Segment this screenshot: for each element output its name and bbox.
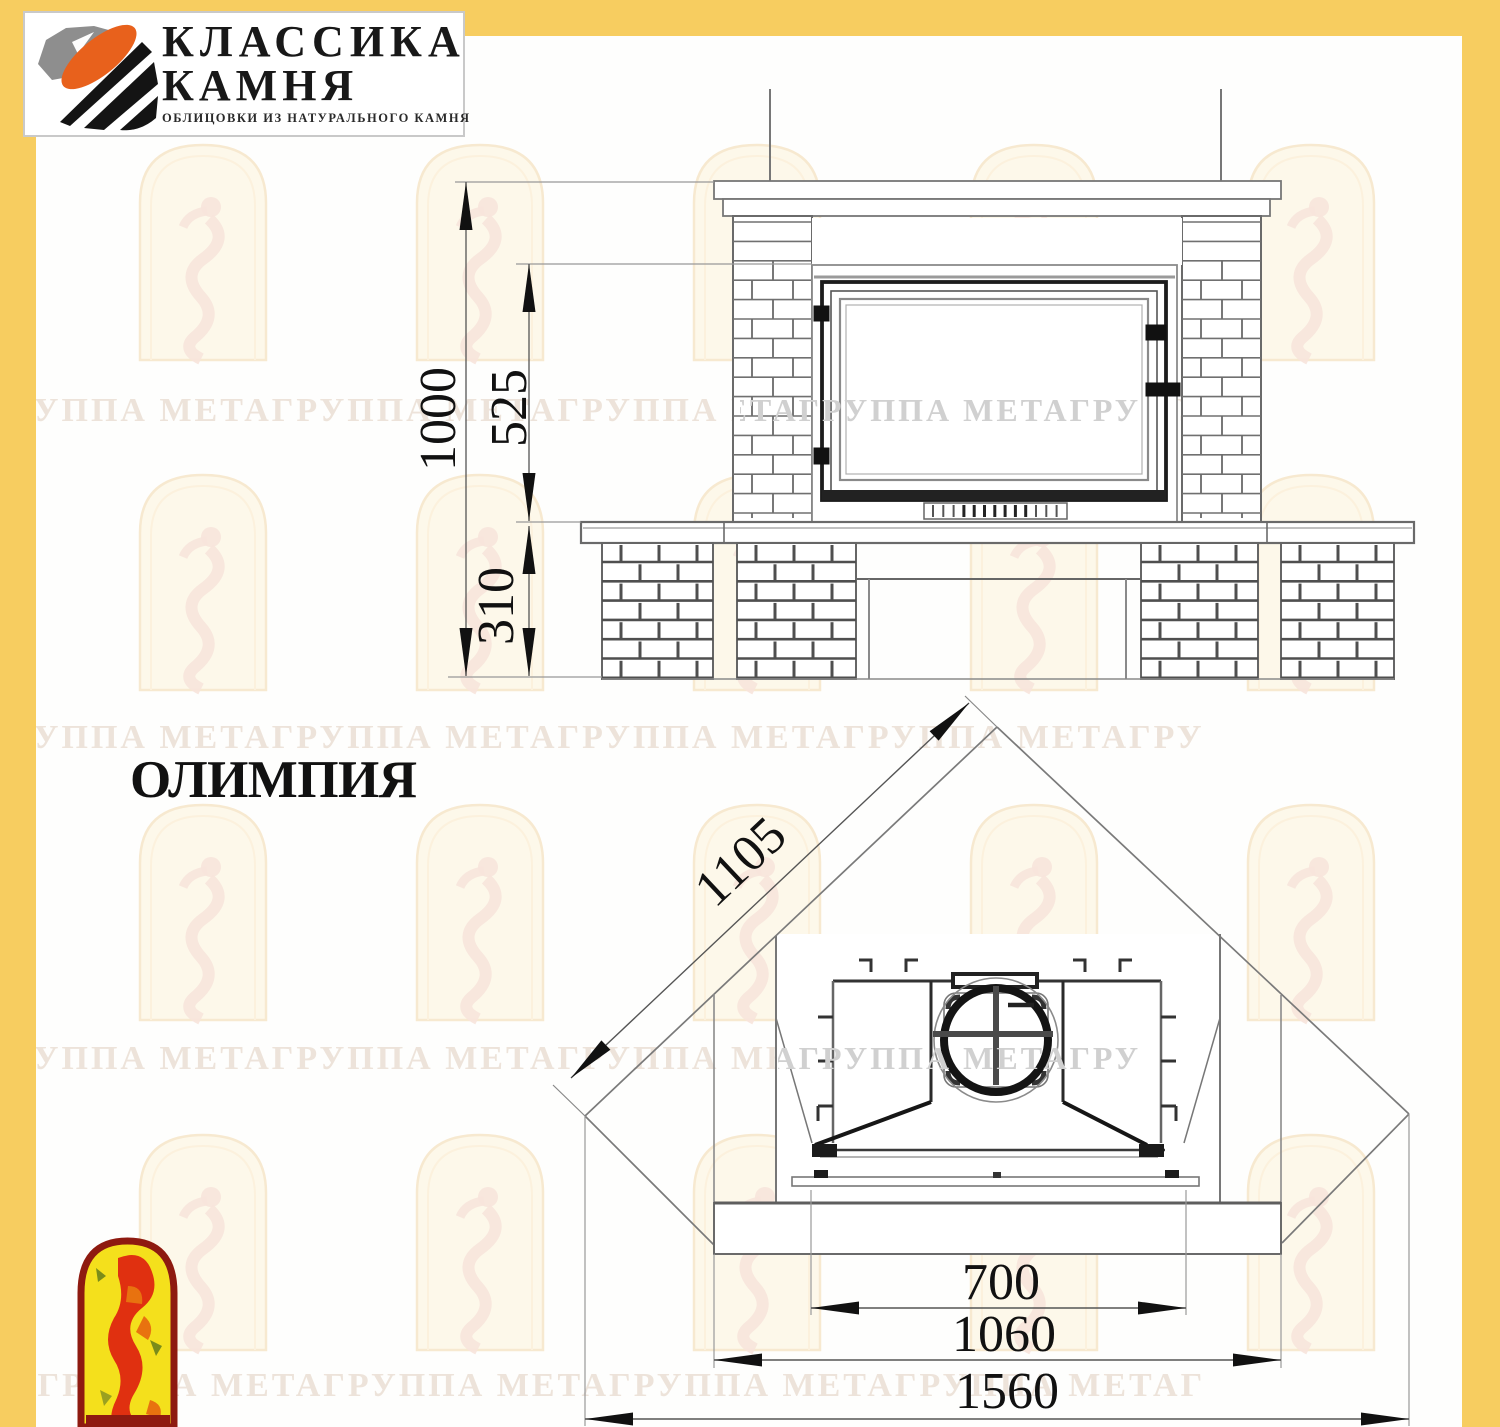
svg-text:525: 525 xyxy=(481,369,538,447)
svg-text:ОБЛИЦОВКИ ИЗ НАТУРАЛЬНОГО КАМН: ОБЛИЦОВКИ ИЗ НАТУРАЛЬНОГО КАМНЯ xyxy=(162,111,471,125)
svg-text:310: 310 xyxy=(468,567,525,645)
svg-text:1000: 1000 xyxy=(410,367,467,471)
svg-text:КЛАССИКА: КЛАССИКА xyxy=(162,17,466,66)
svg-text:КАМНЯ: КАМНЯ xyxy=(162,61,358,110)
svg-text:700: 700 xyxy=(962,1254,1040,1311)
svg-text:1060: 1060 xyxy=(952,1306,1056,1363)
svg-text:1560: 1560 xyxy=(955,1363,1059,1420)
svg-text:ОЛИМПИЯ: ОЛИМПИЯ xyxy=(130,751,417,809)
